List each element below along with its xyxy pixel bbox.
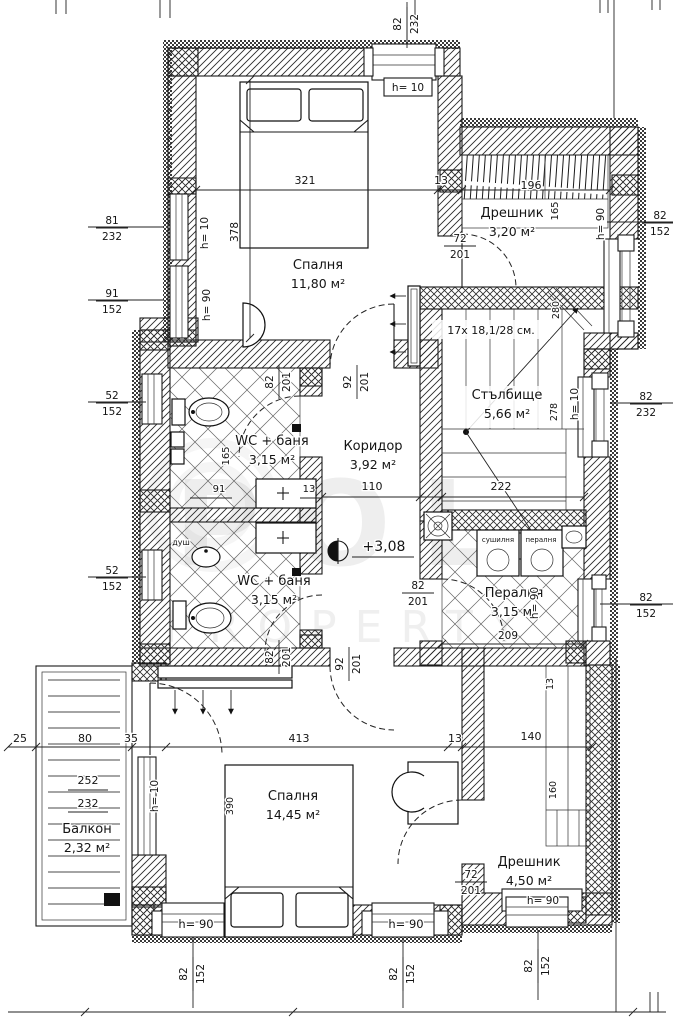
h10-stairs-window: h= 10 bbox=[569, 388, 581, 420]
dim-80: 80 bbox=[78, 732, 92, 745]
laundry-shaft bbox=[424, 512, 452, 540]
dim-82-152-right-top-den: 152 bbox=[650, 226, 670, 238]
bed-top bbox=[240, 82, 368, 248]
window-left-1 bbox=[170, 194, 188, 260]
cabinet-between-baths-2 bbox=[256, 523, 316, 553]
dim-13-top: 13 bbox=[434, 174, 448, 187]
dim-82-152-bw2-num: 82 bbox=[388, 967, 400, 980]
balcony-deck bbox=[48, 678, 120, 914]
door-balcony bbox=[150, 683, 222, 755]
room-area-staircase: 5,66 м² bbox=[484, 406, 530, 421]
dim-82-232-right-num: 82 bbox=[639, 391, 652, 403]
dim-72-201-closet-num: 72 bbox=[464, 869, 477, 881]
dim-91-152-num: 91 bbox=[105, 288, 118, 300]
dim-140: 140 bbox=[521, 730, 542, 743]
window-left-2 bbox=[170, 266, 188, 338]
h90-bottom-window-1: h= 90 bbox=[178, 917, 213, 931]
radiator-bottom bbox=[158, 666, 292, 714]
h90-closet-window: h= 90 bbox=[527, 895, 559, 907]
room-label-wc-bath-upper: WC + баня bbox=[235, 434, 308, 449]
dim-91: 91 bbox=[213, 484, 226, 495]
window-wardrobe-east bbox=[604, 235, 634, 337]
dim-92-201-bed2-den: 201 bbox=[351, 654, 363, 674]
h90-left-window: h= 90 bbox=[201, 289, 213, 321]
room-area-wc-bath-upper: 3,15 м² bbox=[249, 452, 295, 467]
floor-plan-drawing: POL PROPERTY bbox=[0, 0, 673, 1024]
dim-82-232-top-num: 82 bbox=[392, 17, 404, 30]
room-area-wc-bath-lower: 3,15 м² bbox=[251, 592, 297, 607]
h10-balcony-door: h= 10 bbox=[149, 780, 161, 812]
balcony-structure bbox=[36, 666, 132, 926]
dim-82-201-wc2-den: 201 bbox=[281, 647, 293, 667]
h10-left-window: h= 10 bbox=[199, 217, 211, 249]
dim-82-152-right-low-den: 152 bbox=[636, 608, 656, 620]
balcony-drain bbox=[104, 893, 120, 906]
room-label-wardrobe-bottom: Дрешник bbox=[497, 855, 560, 870]
appliance-dryer: сушилня bbox=[482, 536, 514, 544]
dim-209: 209 bbox=[498, 630, 518, 642]
dim-72-201-wardrobe-num: 72 bbox=[453, 233, 466, 245]
laundry-sink bbox=[562, 526, 586, 548]
dim-82-152-bw1-num: 82 bbox=[178, 967, 190, 980]
dim-280: 280 bbox=[551, 301, 562, 319]
dim-390: 390 bbox=[225, 797, 236, 815]
room-label-wc-bath-lower: WC + баня bbox=[237, 574, 310, 589]
toilet-lower bbox=[173, 601, 231, 633]
dim-52-152-lower-den: 152 bbox=[102, 581, 122, 593]
room-area-wardrobe-top: 3,20 м² bbox=[489, 224, 535, 239]
dim-232-balcony: 232 bbox=[78, 797, 99, 810]
dim-82-201-laundry-num: 82 bbox=[411, 580, 424, 592]
dim-196: 196 bbox=[521, 179, 542, 192]
dim-82-201-wc1-num: 82 bbox=[264, 375, 276, 388]
dim-25: 25 bbox=[13, 732, 27, 745]
dim-82-152-right-low-num: 82 bbox=[639, 592, 652, 604]
room-area-wardrobe-bottom: 4,50 м² bbox=[506, 873, 552, 888]
bath-cabinet bbox=[171, 449, 184, 464]
dim-82-152-bw3-num: 82 bbox=[523, 959, 535, 972]
dim-82-201-laundry-den: 201 bbox=[408, 596, 428, 608]
dim-82-201-wc2-num: 82 bbox=[264, 650, 276, 663]
door-bedroom-top bbox=[330, 304, 394, 368]
dim-110: 110 bbox=[362, 480, 383, 493]
room-label-balcony: Балкон bbox=[62, 822, 112, 837]
dim-91-152-den: 152 bbox=[102, 304, 122, 316]
h90-wardrobe-window: h= 90 bbox=[595, 208, 607, 240]
dim-82-152-bw2-den: 152 bbox=[405, 964, 417, 984]
dim-278: 278 bbox=[549, 403, 560, 421]
desk bbox=[392, 762, 458, 824]
wall-stairs-west bbox=[420, 309, 442, 521]
dim-82-201-wc1-den: 201 bbox=[281, 372, 293, 392]
dim-165-closet: 165 bbox=[550, 201, 561, 220]
room-area-corridor: 3,92 м² bbox=[350, 457, 396, 472]
room-label-bedroom-bottom: Спалня bbox=[268, 789, 318, 804]
dim-165-bath: 165 bbox=[221, 446, 232, 465]
dim-222: 222 bbox=[491, 480, 512, 493]
room-label-wardrobe-top: Дрешник bbox=[480, 206, 543, 221]
room-label-corridor: Коридор bbox=[343, 439, 402, 454]
dim-82-152-right-top-num: 82 bbox=[653, 210, 666, 222]
bath-cabinet bbox=[171, 432, 184, 447]
dim-52-152-upper-num: 52 bbox=[105, 390, 118, 402]
dim-82-152-bw3-den: 152 bbox=[540, 956, 552, 976]
stairs-spec: 17x 18,1/28 см. bbox=[447, 324, 535, 337]
floor-plan-page: POL PROPERTY bbox=[0, 0, 673, 1024]
door-wardrobe-top bbox=[462, 234, 516, 288]
appliance-washer: пералня bbox=[526, 536, 557, 544]
dim-92-201-bed1-num: 92 bbox=[342, 375, 354, 388]
dim-160: 160 bbox=[548, 781, 559, 799]
dim-321: 321 bbox=[295, 174, 316, 187]
chair bbox=[392, 772, 424, 812]
window-bath-lower bbox=[142, 550, 162, 600]
toilet-upper bbox=[172, 398, 229, 426]
wardrobe-bottom-rail bbox=[546, 666, 590, 846]
window-laundry-east bbox=[578, 575, 606, 641]
wall-fixture bbox=[292, 424, 301, 432]
window-stairs-east bbox=[578, 373, 608, 457]
room-area-balcony: 2,32 м² bbox=[64, 840, 110, 855]
dim-82-232-top-den: 232 bbox=[409, 14, 421, 34]
dim-252: 252 bbox=[78, 774, 99, 787]
dim-35: 35 bbox=[124, 732, 138, 745]
room-area-bedroom-top: 11,80 м² bbox=[291, 276, 345, 291]
dim-13-bottom: 13 bbox=[448, 732, 462, 745]
dim-52-152-lower-num: 52 bbox=[105, 565, 118, 577]
dim-82-232-right-den: 232 bbox=[636, 407, 656, 419]
dim-72-201-wardrobe-den: 201 bbox=[450, 249, 470, 261]
h10-top-window: h= 10 bbox=[392, 82, 424, 94]
dim-82-152-bw1-den: 152 bbox=[195, 964, 207, 984]
h90-laundry-window: h= 90 bbox=[529, 587, 541, 619]
h90-bottom-window-2: h= 90 bbox=[388, 917, 423, 931]
dim-81-232-den: 232 bbox=[102, 231, 122, 243]
dim-92-201-bed2-num: 92 bbox=[334, 657, 346, 670]
dim-378: 378 bbox=[229, 222, 241, 242]
dim-13-wc: 13 bbox=[303, 484, 316, 495]
window-bath-upper bbox=[142, 374, 162, 424]
dim-413: 413 bbox=[289, 732, 310, 745]
room-area-bedroom-bottom: 14,45 м² bbox=[266, 807, 320, 822]
dim-72-201-closet-den: 201 bbox=[461, 885, 481, 897]
sink-lower bbox=[192, 547, 220, 567]
dim-13-closet: 13 bbox=[545, 678, 556, 690]
door-bedroom-bottom bbox=[330, 666, 394, 730]
dim-52-152-upper-den: 152 bbox=[102, 406, 122, 418]
level-value: +3,08 bbox=[363, 539, 406, 555]
dim-81-232-num: 81 bbox=[105, 215, 118, 227]
room-label-bedroom-top: Спалня bbox=[293, 258, 343, 273]
shower-label: душ bbox=[172, 538, 190, 547]
room-label-staircase: Стълбище bbox=[472, 388, 543, 403]
dim-92-201-bed1-den: 201 bbox=[359, 372, 371, 392]
